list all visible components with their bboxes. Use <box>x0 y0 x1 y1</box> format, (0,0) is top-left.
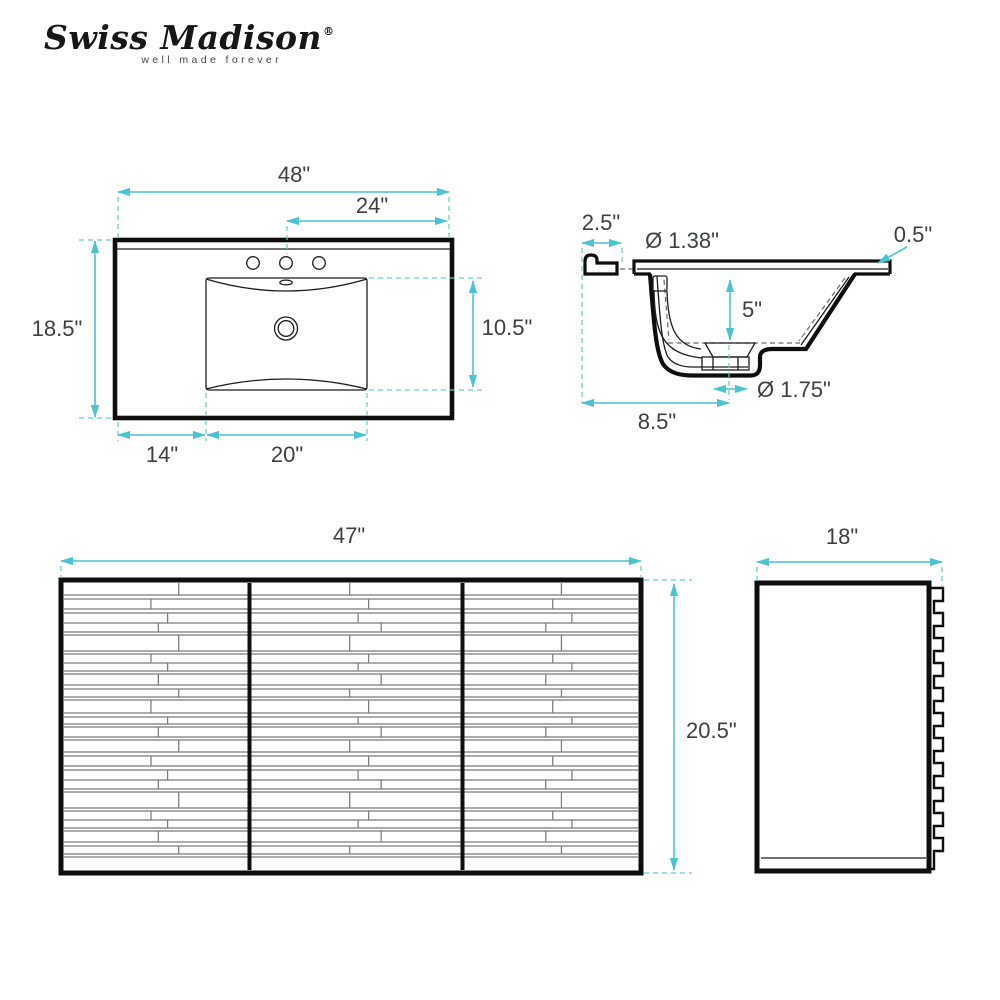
drain-pipe <box>702 357 749 370</box>
dim-overall-width: 48" <box>278 162 310 187</box>
drain-flange <box>705 343 755 357</box>
cabinet-front-view: 47" 20.5" <box>61 523 737 873</box>
dim-basin-inner-depth: 5" <box>742 297 762 322</box>
dim-basin-depth: 10.5" <box>482 315 533 340</box>
dim-cabinet-width: 47" <box>333 523 365 548</box>
bowl-section <box>650 274 855 376</box>
sink-section-view: 2.5" Ø 1.38" 0.5" 5" Ø 1.75" 8.5" <box>582 210 932 434</box>
dim-faucet-to-edge: 24" <box>356 193 388 218</box>
dim-overall-depth: 18.5" <box>32 316 83 341</box>
dim-edge-to-basin: 14" <box>146 442 178 467</box>
dim-cabinet-height: 20.5" <box>686 718 737 743</box>
cabinet-side-view: 18" <box>757 524 943 871</box>
dim-counter-thickness: 0.5" <box>894 222 932 247</box>
dim-drain-diameter: Ø 1.75" <box>757 377 831 402</box>
dim-faucet-hole-diameter: Ø 1.38" <box>645 228 719 253</box>
dim-edge-to-drain: 8.5" <box>638 409 676 434</box>
faucet-hole-right <box>313 257 326 270</box>
faucet-hole-left <box>247 257 260 270</box>
technical-drawing: 48" 24" 18.5" 10.5" 14" 20" <box>0 0 1000 1000</box>
dim-cabinet-depth: 18" <box>826 524 858 549</box>
dim-basin-width: 20" <box>271 442 303 467</box>
faucet-hole-center <box>280 257 293 270</box>
slat-pattern <box>64 583 638 857</box>
basin-outline <box>206 278 367 390</box>
sink-top-view: 48" 24" 18.5" 10.5" 14" 20" <box>32 162 533 467</box>
dim-backsplash-width: 2.5" <box>582 210 620 235</box>
overflow-hole <box>280 280 292 285</box>
backsplash-profile <box>585 255 617 274</box>
